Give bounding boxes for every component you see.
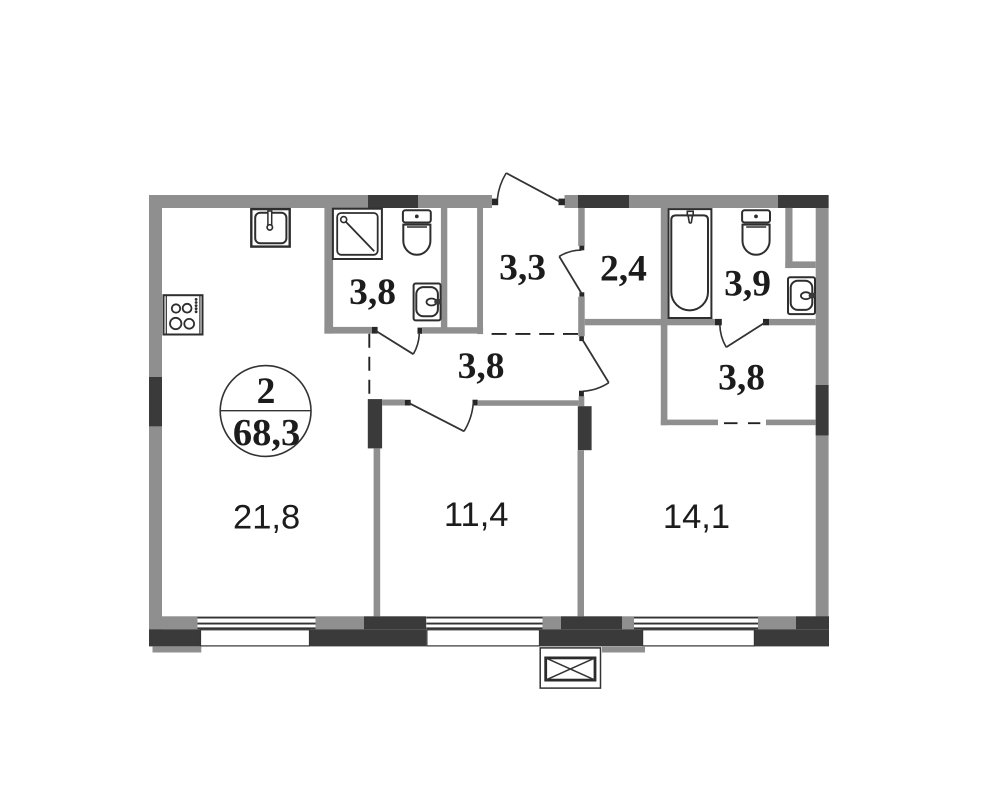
svg-text:3,8: 3,8 bbox=[349, 272, 396, 313]
svg-text:3,8: 3,8 bbox=[718, 358, 765, 399]
svg-text:68,3: 68,3 bbox=[233, 412, 300, 454]
svg-text:21,8: 21,8 bbox=[233, 499, 300, 537]
svg-text:11,4: 11,4 bbox=[444, 496, 509, 534]
svg-text:3,8: 3,8 bbox=[458, 346, 505, 387]
svg-text:2,4: 2,4 bbox=[600, 249, 647, 290]
svg-text:3,3: 3,3 bbox=[499, 248, 546, 289]
svg-text:3,9: 3,9 bbox=[724, 264, 771, 305]
svg-text:2: 2 bbox=[257, 371, 276, 412]
svg-text:14,1: 14,1 bbox=[663, 498, 730, 536]
